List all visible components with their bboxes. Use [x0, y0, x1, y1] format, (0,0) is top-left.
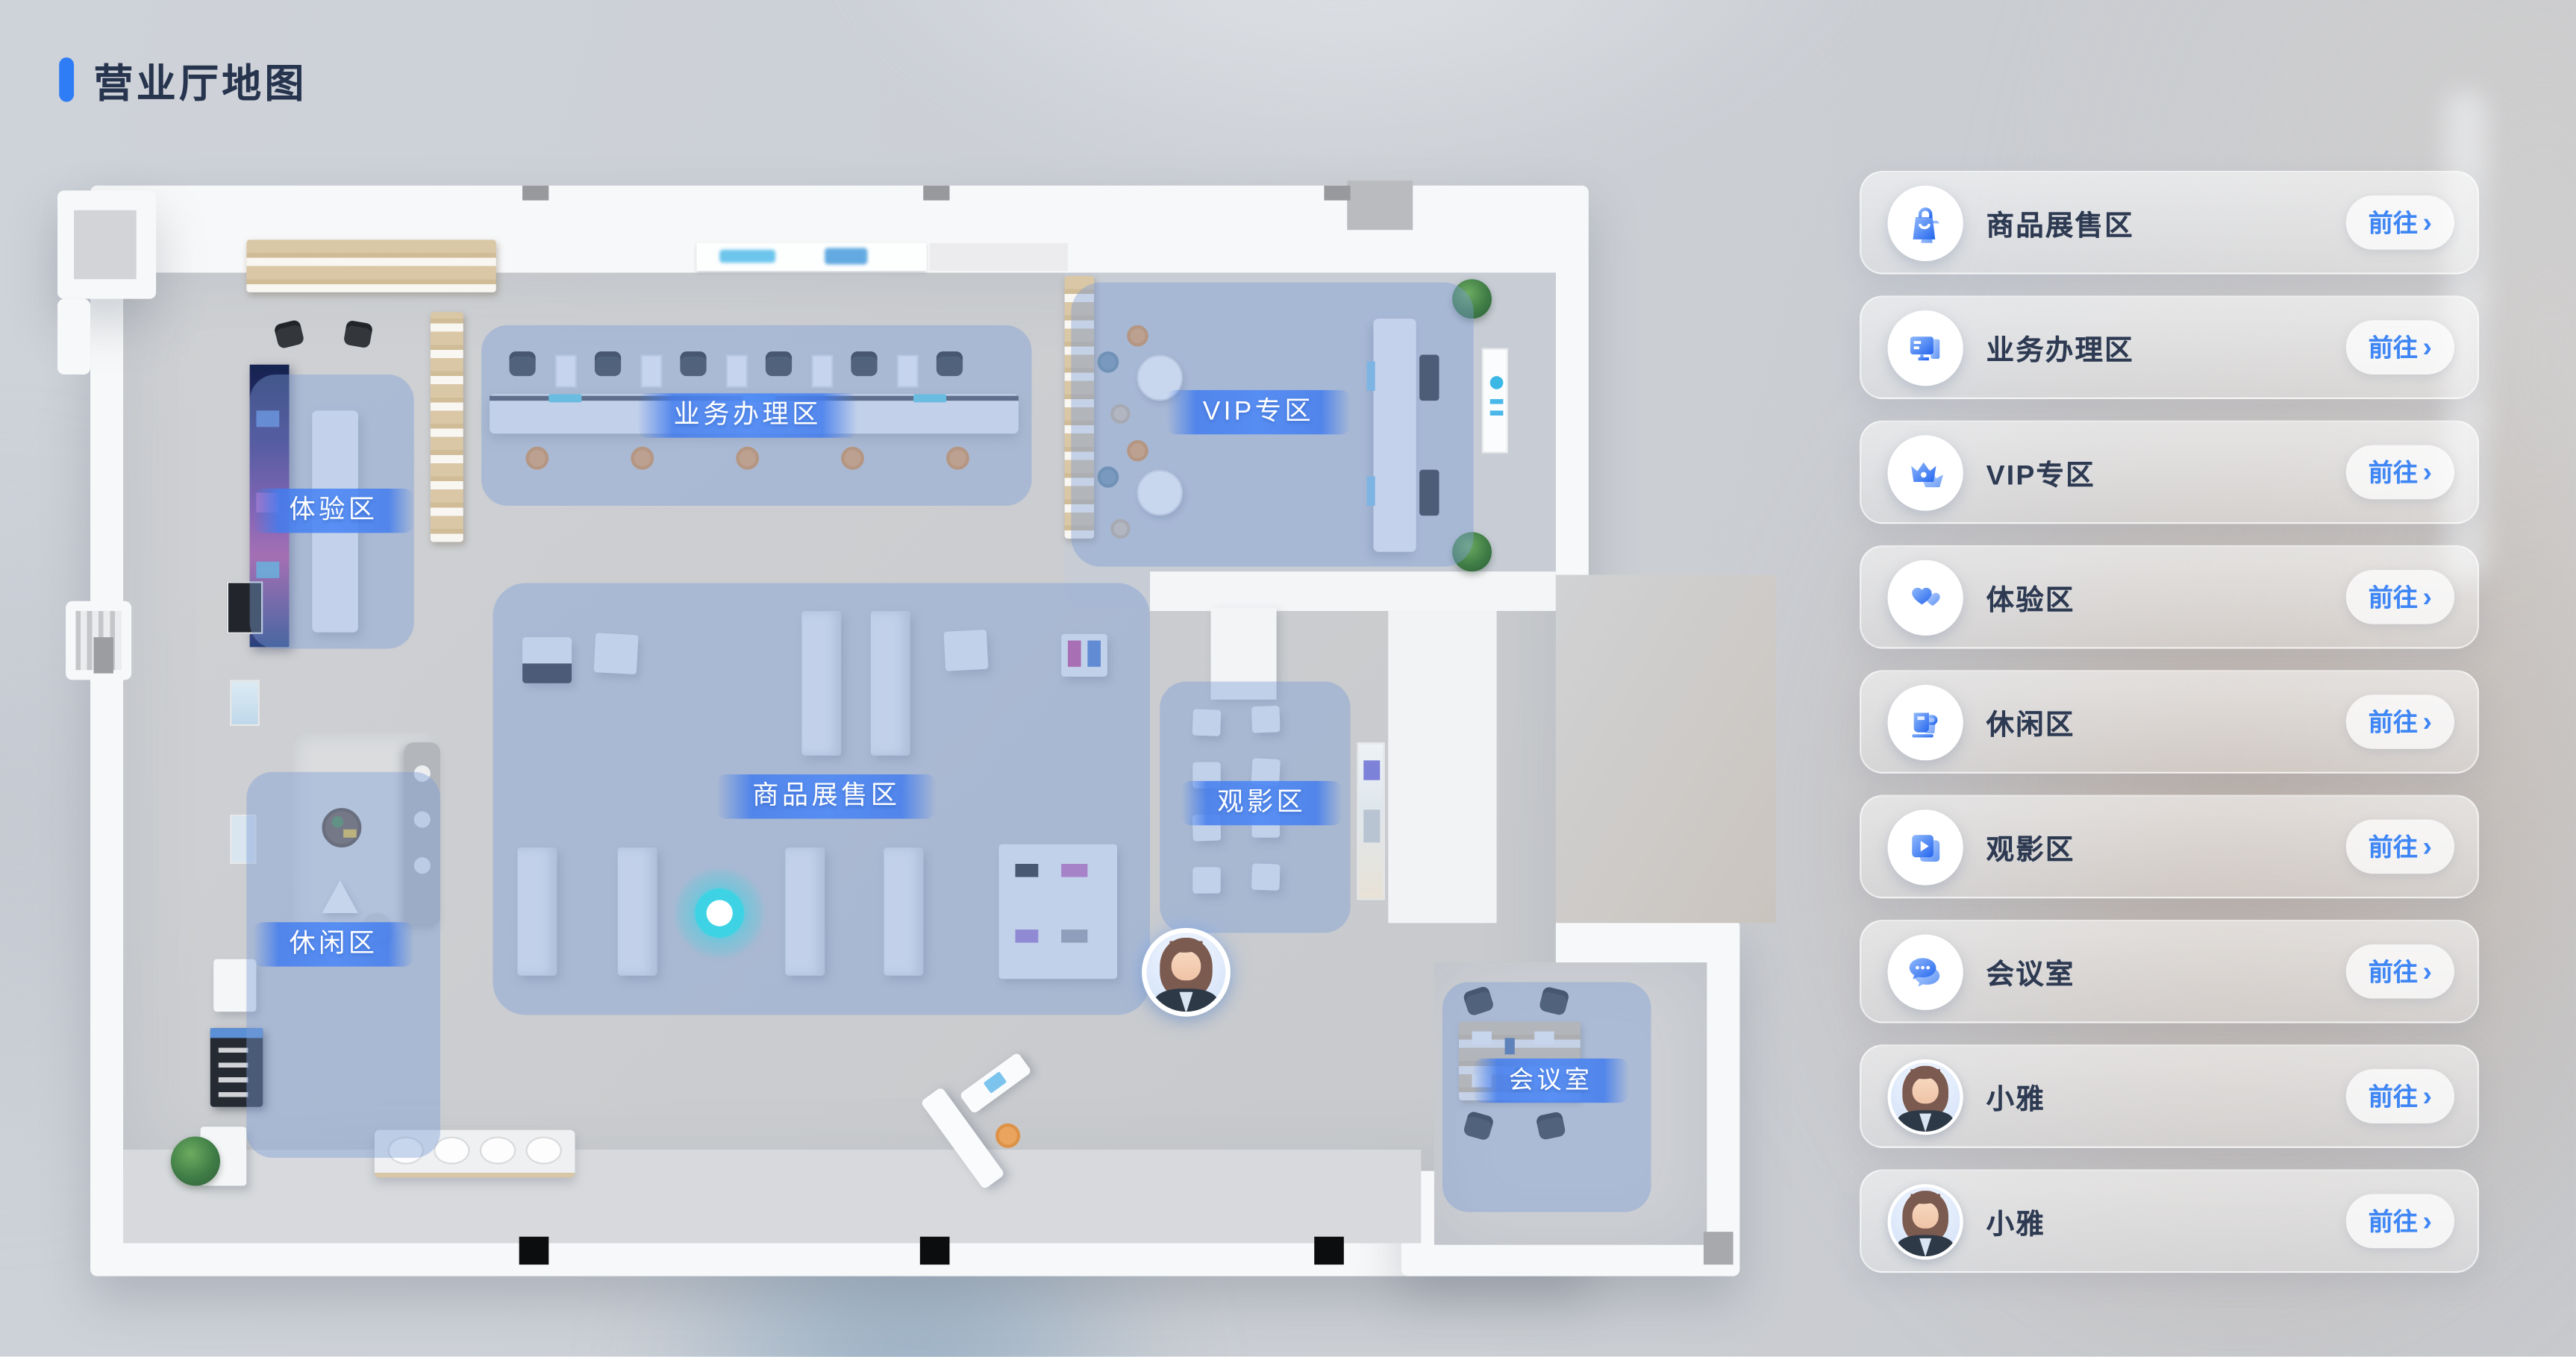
sidebar-item-movie[interactable]: 观影区 前往 ›	[1860, 795, 2479, 899]
zone-label-movie: 观影区	[1181, 781, 1342, 825]
vip-wall-sign	[1482, 348, 1508, 454]
go-button[interactable]: 前往 ›	[2346, 1069, 2454, 1123]
sidebar-item-label: 体验区	[1986, 577, 2346, 618]
navigation-sidebar: 商品展售区 前往 › 业务办理区 前往 › VIP专区 前往 ›	[1860, 171, 2479, 1294]
wall-mark	[93, 637, 113, 673]
go-button-label: 前往	[2369, 330, 2418, 365]
xiaoya-avatar	[1888, 1183, 1963, 1259]
display-shelf	[431, 312, 463, 542]
chevron-right-icon: ›	[2422, 333, 2431, 360]
reception-chair	[995, 1123, 1020, 1148]
wall-mark	[522, 186, 548, 201]
go-button[interactable]: 前往 ›	[2346, 570, 2454, 624]
chevron-right-icon: ›	[2422, 707, 2431, 735]
movie-right-wall	[1388, 611, 1496, 923]
sidebar-item-experience[interactable]: 体验区 前往 ›	[1860, 545, 2479, 649]
door-mark	[519, 1237, 549, 1264]
sidebar-item-xiaoya-1[interactable]: 小雅 前往 ›	[1860, 1044, 2479, 1148]
sidebar-item-label: 商品展售区	[1986, 202, 2346, 243]
chat-bubbles-icon	[1888, 934, 1963, 1009]
brand-sign	[696, 243, 926, 271]
go-button-label: 前往	[2369, 954, 2418, 988]
sidebar-item-products[interactable]: 商品展售区 前往 ›	[1860, 171, 2479, 275]
sidebar-item-label: 小雅	[1986, 1200, 2346, 1241]
corner-vent	[1704, 1232, 1734, 1264]
go-button-label: 前往	[2369, 1079, 2418, 1113]
wall-poster	[230, 680, 260, 726]
sidebar-item-leisure[interactable]: 休闲区 前往 ›	[1860, 670, 2479, 774]
movie-poster	[1357, 742, 1384, 900]
go-button[interactable]: 前往 ›	[2346, 195, 2454, 250]
sidebar-item-label: 小雅	[1986, 1076, 2346, 1117]
sidebar-item-vip[interactable]: VIP专区 前往 ›	[1860, 421, 2479, 524]
wall-stub	[57, 299, 90, 374]
sidebar-item-label: VIP专区	[1986, 451, 2346, 492]
hall-map: 体验区 业务办理区 VIP专区 商品展售区 观影区 休闲区 会议室	[0, 0, 1807, 1356]
sidebar-item-label: 业务办理区	[1986, 327, 2346, 368]
demo-counter	[246, 239, 496, 292]
go-button-label: 前往	[2369, 830, 2418, 864]
sidebar-item-label: 休闲区	[1986, 701, 2346, 742]
go-button[interactable]: 前往 ›	[2346, 695, 2454, 749]
go-button-label: 前往	[2369, 704, 2418, 739]
go-button-label: 前往	[2369, 205, 2418, 239]
video-play-icon	[1888, 809, 1963, 884]
marble-sign-panel	[930, 243, 1068, 271]
chevron-right-icon: ›	[2422, 832, 2431, 859]
roof-step	[1347, 181, 1413, 230]
zone-label-vip: VIP专区	[1166, 390, 1350, 434]
zone-label-products: 商品展售区	[716, 774, 937, 818]
go-button-label: 前往	[2369, 580, 2418, 614]
monitor-icon	[1888, 310, 1963, 385]
chevron-right-icon: ›	[2422, 1206, 2431, 1234]
go-button-label: 前往	[2369, 455, 2418, 489]
chevron-right-icon: ›	[2422, 1082, 2431, 1109]
door-mark	[920, 1237, 950, 1264]
sidebar-item-meeting[interactable]: 会议室 前往 ›	[1860, 920, 2479, 1024]
go-button[interactable]: 前往 ›	[2346, 1194, 2454, 1248]
zone-label-leisure: 休闲区	[253, 922, 414, 966]
vestibule-floor	[74, 210, 137, 279]
chevron-right-icon: ›	[2422, 582, 2431, 609]
guide-avatar-marker[interactable]	[1142, 928, 1231, 1017]
potted-plant	[171, 1136, 220, 1185]
wall-mark	[1324, 186, 1350, 201]
go-button[interactable]: 前往 ›	[2346, 820, 2454, 874]
interior-wall	[1150, 571, 1556, 611]
sidebar-item-business[interactable]: 业务办理区 前往 ›	[1860, 295, 2479, 399]
desk-chair	[343, 320, 373, 349]
crown-icon	[1888, 434, 1963, 510]
zone-label-experience: 体验区	[253, 489, 414, 533]
xiaoya-avatar	[1888, 1059, 1963, 1134]
door-mark	[1314, 1237, 1344, 1264]
chevron-right-icon: ›	[2422, 956, 2431, 984]
coffee-cup-icon	[1888, 684, 1963, 759]
shopping-bag-icon	[1888, 185, 1963, 260]
chevron-right-icon: ›	[2422, 207, 2431, 235]
hearts-icon	[1888, 560, 1963, 635]
wall-mark	[923, 186, 949, 201]
sidebar-item-xiaoya-2[interactable]: 小雅 前往 ›	[1860, 1169, 2479, 1273]
go-button-label: 前往	[2369, 1204, 2418, 1238]
screen: 营业厅地图	[0, 0, 2576, 1356]
walkway-floor	[123, 1150, 1421, 1243]
go-button[interactable]: 前往 ›	[2346, 445, 2454, 500]
chevron-right-icon: ›	[2422, 457, 2431, 485]
zone-label-meeting: 会议室	[1473, 1059, 1629, 1103]
sidebar-item-label: 观影区	[1986, 826, 2346, 867]
sidebar-item-label: 会议室	[1986, 951, 2346, 992]
go-button[interactable]: 前往 ›	[2346, 320, 2454, 374]
zone-label-business: 业务办理区	[637, 393, 857, 437]
go-button[interactable]: 前往 ›	[2346, 944, 2454, 999]
